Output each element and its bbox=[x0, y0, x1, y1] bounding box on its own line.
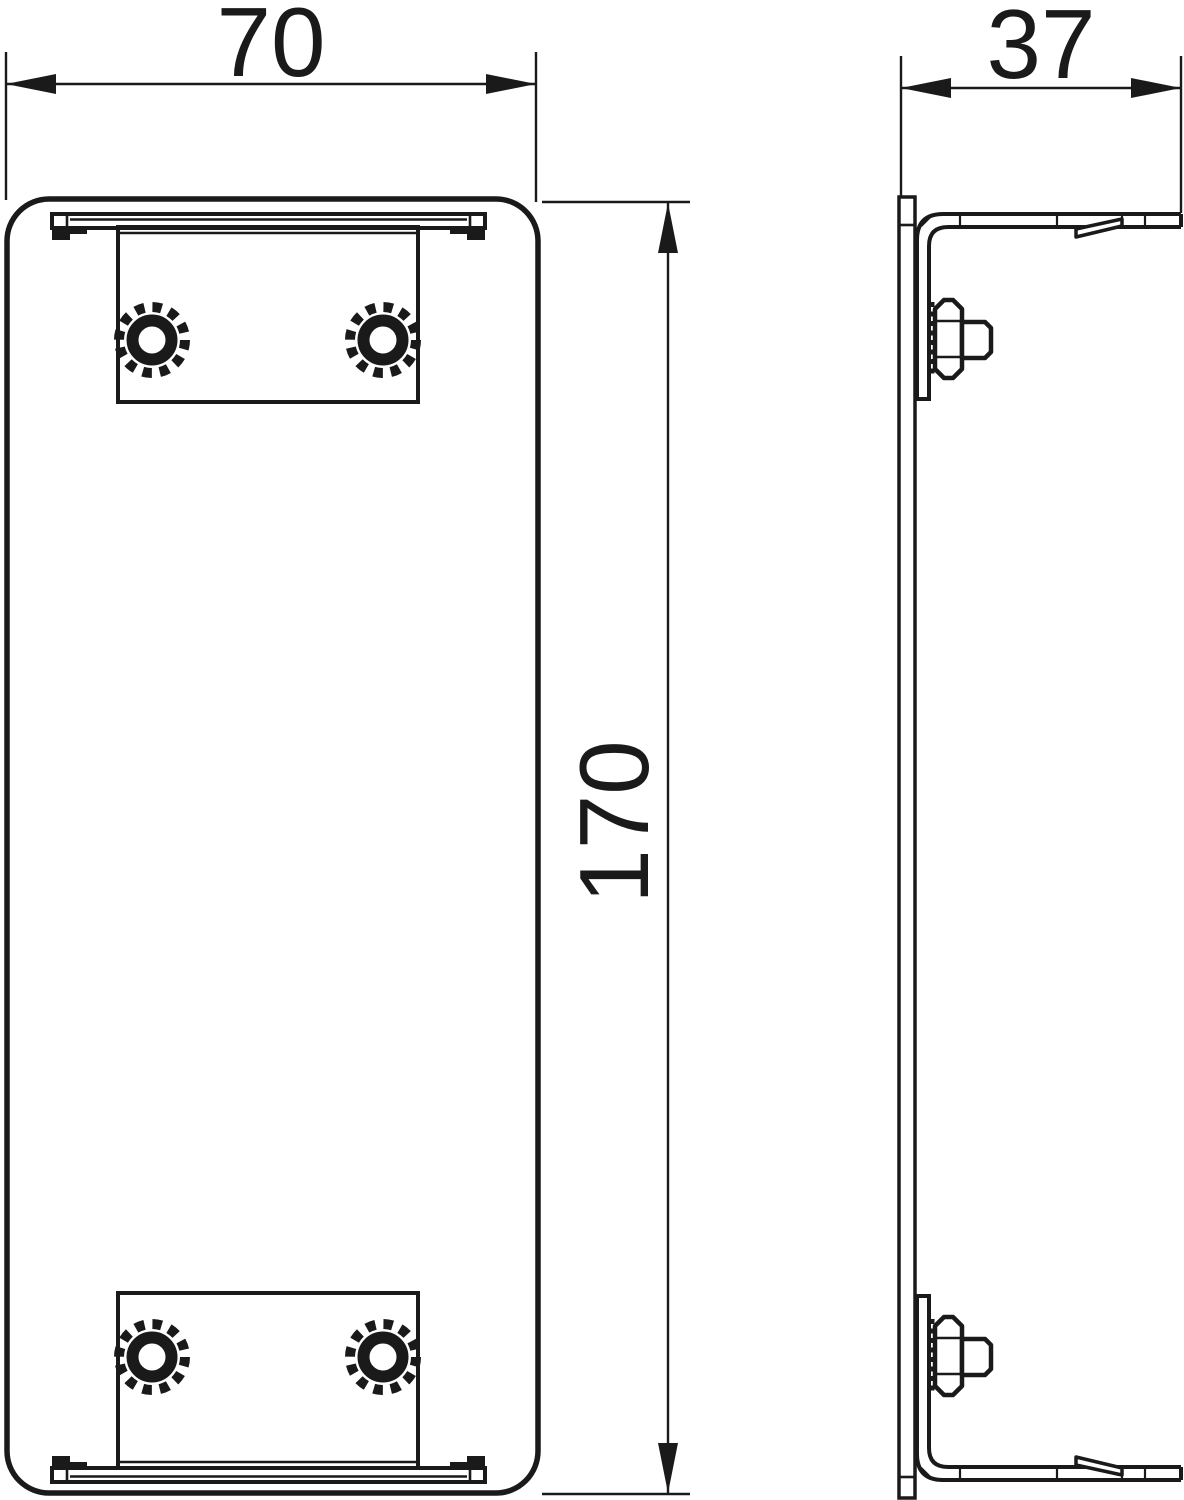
bolt-stud bbox=[962, 1339, 991, 1375]
dimension-height-label: 170 bbox=[559, 740, 669, 904]
knurled-fastener bbox=[350, 307, 416, 373]
arrowhead-right bbox=[1131, 78, 1181, 98]
dimension-width: 70 bbox=[6, 0, 536, 202]
top-bolt bbox=[931, 300, 991, 378]
arrowhead-bottom bbox=[658, 1443, 678, 1493]
arrowhead-top bbox=[658, 203, 678, 253]
dimension-width-label: 70 bbox=[216, 0, 325, 97]
bottom-plate-outline bbox=[118, 1293, 418, 1468]
hex-nut-profile bbox=[935, 300, 962, 378]
bottom-bar-outline bbox=[52, 1468, 485, 1482]
bottom-mounting-plate bbox=[118, 1293, 418, 1468]
bottom-latch-tongue bbox=[1076, 1457, 1122, 1475]
top-flange-inner-edge bbox=[929, 227, 1181, 397]
technical-drawing: 70 37 170 bbox=[0, 0, 1184, 1500]
hex-nut-profile bbox=[935, 1317, 962, 1395]
bottom-flange-inner-edge bbox=[929, 1297, 1181, 1467]
knurled-fastener bbox=[119, 1324, 185, 1390]
front-view bbox=[7, 199, 538, 1493]
arrowhead-right bbox=[486, 74, 536, 94]
cap-body-outline bbox=[7, 199, 538, 1493]
dimension-depth-label: 37 bbox=[986, 0, 1095, 99]
top-mounting-plate bbox=[118, 227, 418, 402]
fastener-ring bbox=[364, 1338, 403, 1377]
knurled-fastener bbox=[350, 1324, 416, 1390]
bottom-bolt bbox=[931, 1317, 991, 1395]
arrowhead-left bbox=[6, 74, 56, 94]
arrowhead-left bbox=[901, 78, 951, 98]
top-bar-right-clip bbox=[450, 228, 485, 240]
side-view bbox=[899, 197, 1181, 1498]
fastener-ring bbox=[133, 321, 172, 360]
dimension-height: 170 bbox=[542, 202, 690, 1494]
bottom-bar-right-clip bbox=[450, 1456, 485, 1468]
cap-plate-outline bbox=[899, 197, 915, 1498]
dimension-depth: 37 bbox=[901, 0, 1181, 213]
fastener-ring bbox=[133, 1338, 172, 1377]
top-bar-left-clip bbox=[52, 228, 87, 240]
bottom-bar-left-clip bbox=[52, 1456, 87, 1468]
bolt-stud bbox=[962, 322, 991, 358]
top-latch-tongue bbox=[1076, 219, 1122, 237]
knurled-fastener bbox=[119, 307, 185, 373]
cap-plate-edge bbox=[899, 197, 915, 1498]
fastener-ring bbox=[364, 321, 403, 360]
drawing-canvas: 70 37 170 bbox=[0, 0, 1184, 1500]
